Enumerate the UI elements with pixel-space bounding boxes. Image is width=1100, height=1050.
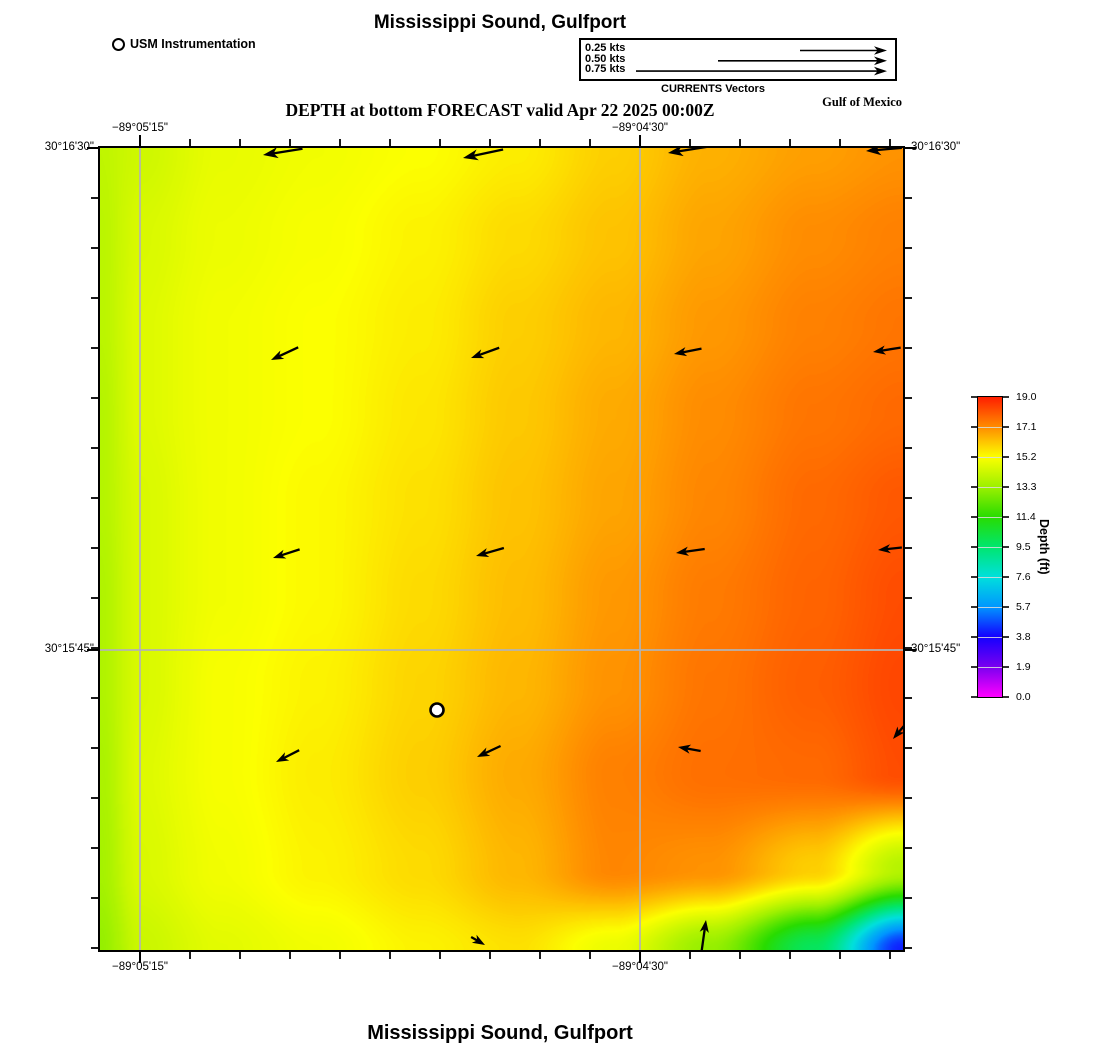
axes-ticks bbox=[0, 0, 1100, 1050]
lat-label-right: 30°16'30" bbox=[911, 141, 960, 153]
lat-label-right: 30°15'45" bbox=[911, 643, 960, 655]
bottom-title: Mississippi Sound, Gulfport bbox=[9, 1022, 991, 1045]
lon-label-bottom: −89°05'15" bbox=[112, 961, 168, 973]
cbar-tick-label: 17.1 bbox=[1016, 421, 1036, 433]
cbar-tick-label: 0.0 bbox=[1016, 691, 1031, 703]
cbar-tick-label: 19.0 bbox=[1016, 391, 1036, 403]
cbar-tick-label: 7.6 bbox=[1016, 571, 1031, 583]
lon-label-bottom: −89°04'30" bbox=[612, 961, 668, 973]
cbar-tick-label: 9.5 bbox=[1016, 541, 1031, 553]
lon-label-top: −89°04'30" bbox=[612, 122, 668, 134]
cbar-tick-label: 11.4 bbox=[1016, 511, 1036, 523]
cbar-tick-label: 13.3 bbox=[1016, 481, 1036, 493]
cbar-tick-label: 15.2 bbox=[1016, 451, 1036, 463]
lat-label-left: 30°15'45" bbox=[0, 643, 94, 655]
cbar-tick-label: 3.8 bbox=[1016, 631, 1031, 643]
lon-label-top: −89°05'15" bbox=[112, 122, 168, 134]
forecast-plot-page: Mississippi Sound, Gulfport USM Instrume… bbox=[0, 0, 1100, 1050]
lat-label-left: 30°16'30" bbox=[0, 141, 94, 153]
cbar-tick-label: 1.9 bbox=[1016, 661, 1031, 673]
cbar-tick-label: 5.7 bbox=[1016, 601, 1031, 613]
colorbar-title: Depth (ft) bbox=[1036, 397, 1052, 697]
